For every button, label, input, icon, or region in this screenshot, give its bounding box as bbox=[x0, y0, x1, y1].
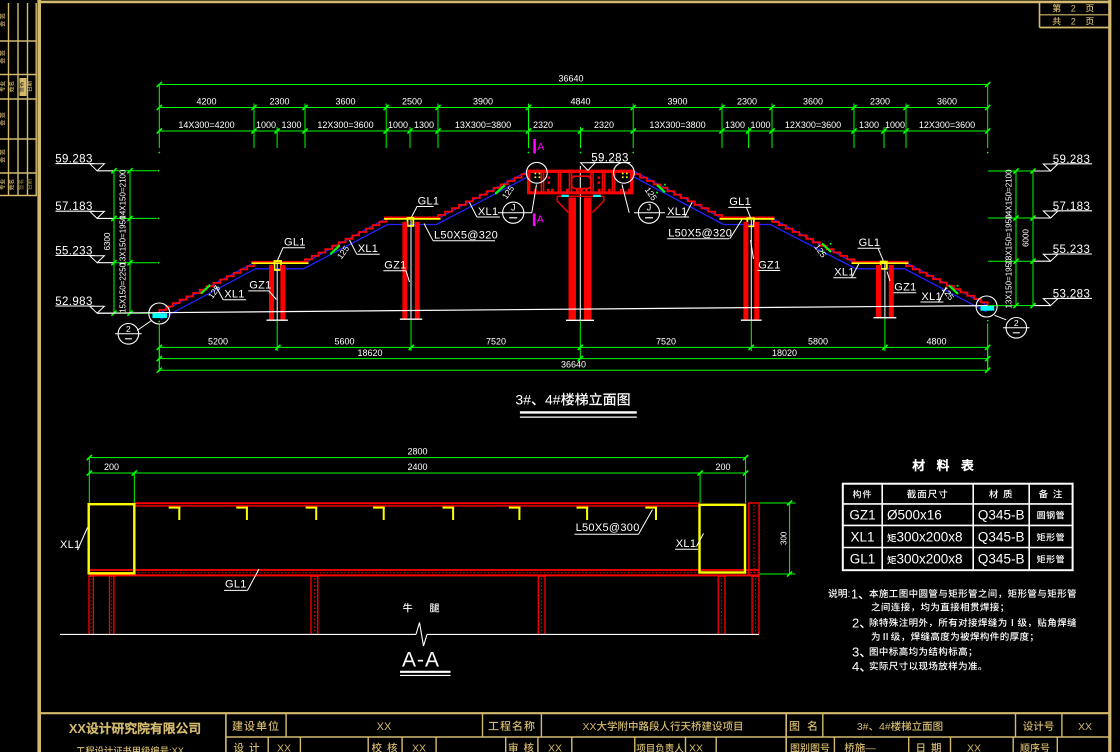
svg-text:13X150=1950: 13X150=1950 bbox=[1005, 258, 1014, 309]
svg-text:说明:: 说明: bbox=[828, 588, 850, 600]
svg-text:3600: 3600 bbox=[803, 97, 823, 107]
svg-text:XL1: XL1 bbox=[676, 538, 696, 550]
svg-text:4800: 4800 bbox=[926, 336, 946, 346]
svg-text:A: A bbox=[537, 141, 544, 153]
svg-text:GZ1: GZ1 bbox=[249, 280, 271, 292]
svg-text:姓名: 姓名 bbox=[9, 81, 16, 92]
svg-text:14X300=4200: 14X300=4200 bbox=[178, 120, 234, 130]
svg-text:Q345-B: Q345-B bbox=[978, 530, 1025, 545]
svg-text:5800: 5800 bbox=[808, 336, 828, 346]
svg-text:材 料 表: 材 料 表 bbox=[911, 458, 978, 473]
svg-text:会 签: 会 签 bbox=[0, 13, 7, 27]
svg-text:顺序号: 顺序号 bbox=[1020, 743, 1050, 752]
svg-text:Ø500x16: Ø500x16 bbox=[887, 508, 942, 523]
svg-text:300: 300 bbox=[780, 531, 789, 545]
svg-text:工程设计证书甲级编号:XX: 工程设计证书甲级编号:XX bbox=[76, 746, 184, 752]
svg-text:日期: 日期 bbox=[27, 81, 34, 93]
svg-text:日 期: 日 期 bbox=[916, 743, 943, 752]
svg-text:GL1: GL1 bbox=[418, 195, 440, 207]
svg-text:共 2 页: 共 2 页 bbox=[1052, 17, 1098, 27]
svg-text:矩形管: 矩形管 bbox=[1037, 555, 1066, 565]
svg-text:L50X5@300: L50X5@300 bbox=[576, 522, 640, 534]
svg-text:会 签: 会 签 bbox=[0, 112, 7, 126]
svg-text:5600: 5600 bbox=[334, 336, 354, 346]
svg-text:1300: 1300 bbox=[859, 120, 879, 130]
svg-text:审 核: 审 核 bbox=[508, 743, 535, 752]
svg-text:2300: 2300 bbox=[870, 97, 890, 107]
svg-text:4840: 4840 bbox=[570, 97, 590, 107]
svg-text:实际尺寸以现场放样为准。: 实际尺寸以现场放样为准。 bbox=[869, 661, 988, 673]
svg-text:日期: 日期 bbox=[27, 179, 34, 191]
svg-text:12X300=3600: 12X300=3600 bbox=[785, 120, 841, 130]
svg-text:图中标高均为结构标高；: 图中标高均为结构标高； bbox=[869, 646, 978, 658]
svg-text:专业: 专业 bbox=[0, 81, 7, 93]
svg-text:36640: 36640 bbox=[558, 74, 583, 84]
svg-text:3900: 3900 bbox=[667, 97, 687, 107]
svg-text:GL1: GL1 bbox=[859, 237, 881, 249]
svg-text:L50X5@320: L50X5@320 bbox=[668, 228, 732, 240]
svg-text:2: 2 bbox=[126, 324, 131, 334]
svg-text:腿: 腿 bbox=[430, 603, 440, 615]
svg-text:矩: 矩 bbox=[887, 534, 897, 545]
svg-text:1300: 1300 bbox=[281, 120, 301, 130]
svg-text:矩: 矩 bbox=[887, 556, 897, 567]
svg-text:3900: 3900 bbox=[473, 97, 493, 107]
svg-text:GZ1: GZ1 bbox=[758, 259, 780, 271]
svg-text:图别图号: 图别图号 bbox=[790, 743, 830, 752]
svg-text:本施工图中圆管与矩形管之间，矩形管与矩形管: 本施工图中圆管与矩形管之间，矩形管与矩形管 bbox=[869, 588, 1077, 600]
svg-text:12X300=3600: 12X300=3600 bbox=[919, 120, 975, 130]
svg-text:GL1: GL1 bbox=[284, 237, 306, 249]
svg-text:200: 200 bbox=[715, 462, 730, 472]
svg-text:工程名称: 工程名称 bbox=[488, 720, 536, 733]
svg-text:300x200x8: 300x200x8 bbox=[897, 552, 963, 567]
svg-text:XX: XX bbox=[689, 743, 703, 752]
svg-text:1000: 1000 bbox=[256, 120, 276, 130]
svg-text:15X150=2250: 15X150=2250 bbox=[119, 262, 128, 313]
svg-text:1300: 1300 bbox=[414, 120, 434, 130]
svg-text:3#、4#楼梯立面图: 3#、4#楼梯立面图 bbox=[857, 721, 943, 733]
svg-text:3600: 3600 bbox=[335, 97, 355, 107]
svg-text:3#、4#楼梯立面图: 3#、4#楼梯立面图 bbox=[515, 392, 630, 408]
svg-text:2500: 2500 bbox=[402, 97, 422, 107]
svg-text:材 质: 材 质 bbox=[989, 489, 1014, 501]
svg-text:XL1: XL1 bbox=[850, 530, 874, 545]
svg-text:GL1: GL1 bbox=[850, 552, 876, 567]
svg-text:300x200x8: 300x200x8 bbox=[897, 530, 963, 545]
svg-text:构件: 构件 bbox=[852, 490, 872, 500]
svg-text:签名: 签名 bbox=[18, 81, 25, 92]
svg-text:2300: 2300 bbox=[269, 97, 289, 107]
svg-text:GZ1: GZ1 bbox=[849, 508, 875, 523]
svg-text:J: J bbox=[511, 203, 516, 213]
svg-text:13X300=3800: 13X300=3800 bbox=[649, 120, 705, 130]
svg-text:200: 200 bbox=[104, 462, 119, 472]
svg-text:牛: 牛 bbox=[403, 603, 413, 615]
svg-text:7520: 7520 bbox=[486, 336, 506, 346]
svg-text:XX: XX bbox=[1078, 721, 1092, 733]
svg-text:签名: 签名 bbox=[18, 179, 25, 190]
svg-text:XL1: XL1 bbox=[478, 206, 498, 218]
svg-text:13X300=3800: 13X300=3800 bbox=[455, 120, 511, 130]
svg-text:XX大学附中路段人行天桥建设项目: XX大学附中路段人行天桥建设项目 bbox=[582, 721, 743, 733]
svg-text:建设单位: 建设单位 bbox=[232, 720, 280, 733]
svg-text:4200: 4200 bbox=[196, 97, 216, 107]
svg-text:XL1: XL1 bbox=[358, 243, 378, 255]
svg-text:1000: 1000 bbox=[885, 120, 905, 130]
svg-text:L50X5@320: L50X5@320 bbox=[434, 230, 498, 242]
svg-text:圆钢管: 圆钢管 bbox=[1037, 511, 1066, 521]
svg-text:XX: XX bbox=[277, 743, 291, 752]
svg-text:除特殊注明外，所有对接焊缝为Ⅰ级，贴角焊缝: 除特殊注明外，所有对接焊缝为Ⅰ级，贴角焊缝 bbox=[869, 617, 1077, 629]
svg-text:6300: 6300 bbox=[103, 232, 112, 250]
svg-text:项目负责人: 项目负责人 bbox=[636, 743, 684, 752]
svg-text:之间连接，均为直接相贯焊接；: 之间连接，均为直接相贯焊接； bbox=[871, 602, 1010, 614]
svg-text:XX: XX bbox=[967, 743, 981, 752]
svg-text:会 签: 会 签 bbox=[0, 50, 7, 64]
svg-text:GZ1: GZ1 bbox=[894, 282, 916, 294]
svg-text:13X150=1950: 13X150=1950 bbox=[119, 215, 128, 266]
svg-text:A: A bbox=[537, 214, 544, 226]
svg-text:2: 2 bbox=[1014, 318, 1019, 328]
svg-text:桥施—: 桥施— bbox=[844, 743, 876, 752]
svg-text:XX: XX bbox=[548, 743, 562, 752]
svg-text:J: J bbox=[647, 203, 652, 213]
svg-text:备 注: 备 注 bbox=[1039, 489, 1064, 501]
svg-text:GL1: GL1 bbox=[729, 196, 751, 208]
svg-text:2800: 2800 bbox=[407, 447, 427, 457]
svg-text:截面尺寸: 截面尺寸 bbox=[907, 489, 949, 501]
svg-text:18620: 18620 bbox=[357, 348, 382, 358]
svg-text:设 计: 设 计 bbox=[234, 743, 261, 752]
svg-text:3600: 3600 bbox=[937, 97, 957, 107]
svg-text:姓名: 姓名 bbox=[9, 179, 16, 190]
svg-text:1000: 1000 bbox=[750, 120, 770, 130]
svg-text:6000: 6000 bbox=[1022, 229, 1031, 247]
svg-text:为Ⅱ级，焊缝高度为被焊构件的厚度；: 为Ⅱ级，焊缝高度为被焊构件的厚度； bbox=[871, 631, 1039, 643]
svg-text:12X300=3600: 12X300=3600 bbox=[317, 120, 373, 130]
svg-text:XX设计研究院有限公司: XX设计研究院有限公司 bbox=[69, 721, 201, 736]
svg-text:36640: 36640 bbox=[561, 359, 586, 369]
svg-text:Q345-B: Q345-B bbox=[978, 552, 1025, 567]
svg-text:XL1: XL1 bbox=[224, 289, 244, 301]
svg-text:图 名: 图 名 bbox=[789, 720, 820, 733]
svg-text:A-A: A-A bbox=[402, 649, 440, 672]
svg-text:校 核: 校 核 bbox=[372, 743, 399, 752]
svg-text:GZ1: GZ1 bbox=[384, 260, 406, 272]
svg-text:专业: 专业 bbox=[0, 179, 7, 191]
svg-text:2320: 2320 bbox=[594, 120, 614, 130]
svg-text:18020: 18020 bbox=[772, 348, 797, 358]
svg-text:XX: XX bbox=[412, 743, 426, 752]
svg-text:2400: 2400 bbox=[407, 462, 427, 472]
svg-text:Q345-B: Q345-B bbox=[978, 508, 1025, 523]
svg-text:14X150=2100: 14X150=2100 bbox=[1005, 169, 1014, 220]
svg-text:1300: 1300 bbox=[725, 120, 745, 130]
svg-text:XX: XX bbox=[377, 721, 392, 733]
svg-text:设计号: 设计号 bbox=[1023, 721, 1055, 733]
svg-text:第 2 页: 第 2 页 bbox=[1052, 4, 1098, 14]
svg-text:1、: 1、 bbox=[851, 588, 870, 602]
svg-text:13X150=1950: 13X150=1950 bbox=[1005, 214, 1014, 265]
svg-text:2320: 2320 bbox=[533, 120, 553, 130]
svg-text:14X150=2100: 14X150=2100 bbox=[119, 169, 128, 220]
svg-text:1000: 1000 bbox=[388, 120, 408, 130]
svg-text:2300: 2300 bbox=[737, 97, 757, 107]
svg-text:会 签: 会 签 bbox=[0, 149, 7, 163]
svg-text:矩形管: 矩形管 bbox=[1037, 533, 1066, 543]
svg-text:7520: 7520 bbox=[656, 336, 676, 346]
svg-text:5200: 5200 bbox=[208, 336, 228, 346]
svg-text:GL1: GL1 bbox=[225, 579, 247, 591]
